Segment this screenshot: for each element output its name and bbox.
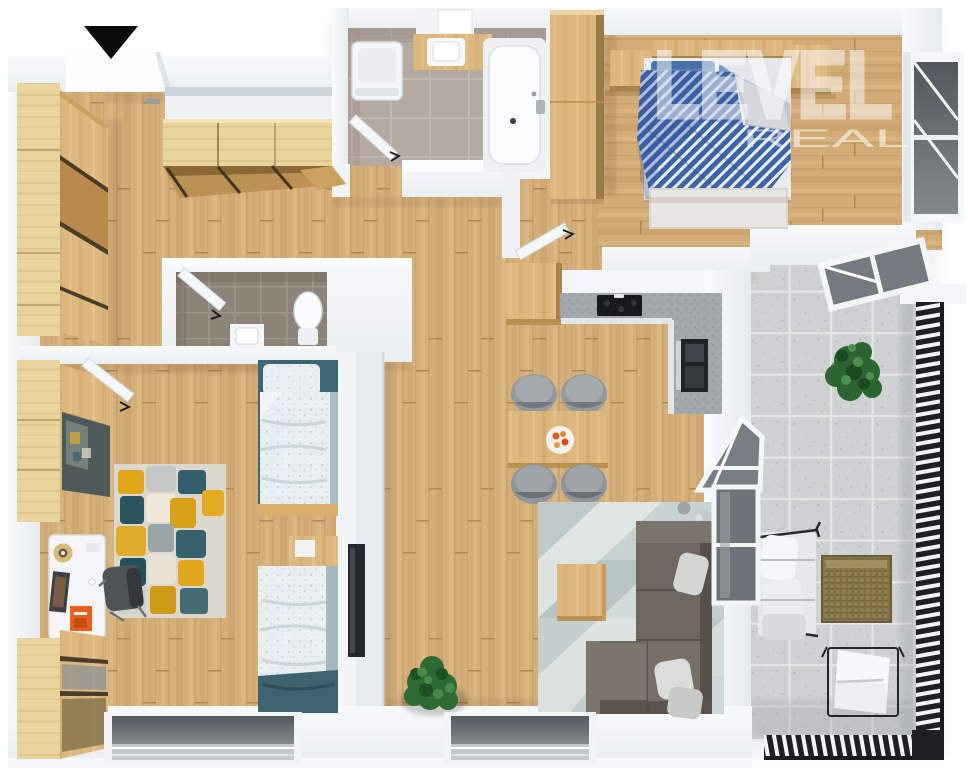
svg-text:REAL: REAL <box>742 125 910 153</box>
svg-text:LEVEL: LEVEL <box>654 32 892 137</box>
